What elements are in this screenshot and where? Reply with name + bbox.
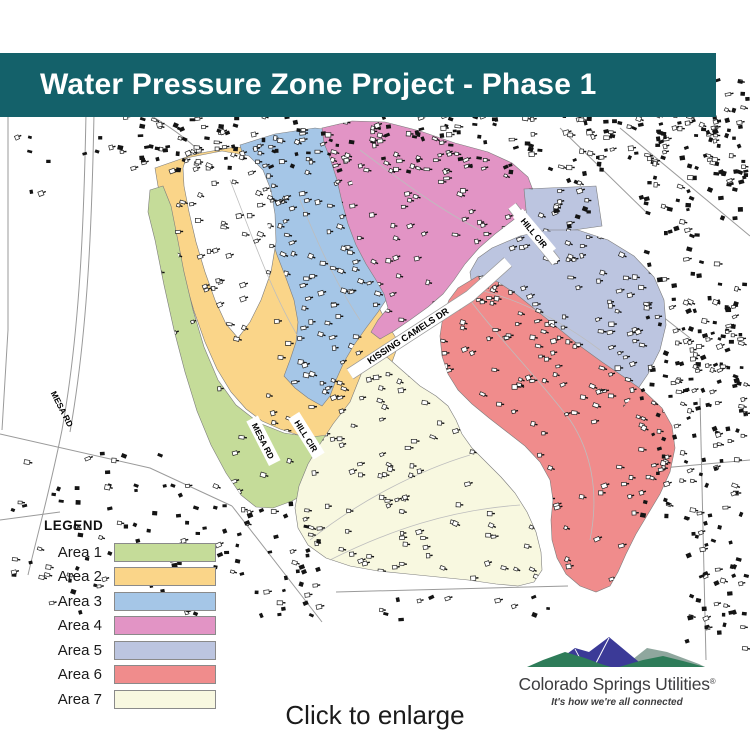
mountains-icon (527, 633, 707, 673)
legend-swatch-area-1 (114, 543, 216, 562)
legend-label: Area 6 (30, 666, 102, 683)
legend-swatch-area-4 (114, 616, 216, 635)
legend-item-area-2: Area 2 (30, 565, 245, 590)
legend-swatch-area-2 (114, 567, 216, 586)
registered-mark: ® (710, 677, 716, 686)
legend-label: Area 4 (30, 617, 102, 634)
click-to-enlarge-caption: Click to enlarge (0, 700, 750, 731)
legend-label: Area 1 (30, 544, 102, 561)
legend-swatch-area-6 (114, 665, 216, 684)
svg-text:MESA RD: MESA RD (49, 389, 76, 428)
legend-item-area-5: Area 5 (30, 638, 245, 663)
legend-swatch-area-3 (114, 592, 216, 611)
legend-label: Area 3 (30, 593, 102, 610)
csu-logo: Colorado Springs Utilities® It's how we'… (503, 633, 731, 708)
street-label-mesa-rd-west: MESA RD (49, 389, 76, 428)
legend: LEGEND Area 1 Area 2 Area 3 Area 4 Area … (30, 518, 245, 712)
legend-item-area-1: Area 1 (30, 540, 245, 565)
legend-item-area-3: Area 3 (30, 589, 245, 614)
logo-company-name: Colorado Springs Utilities® (503, 674, 731, 695)
legend-item-area-6: Area 6 (30, 663, 245, 688)
legend-title: LEGEND (44, 518, 245, 533)
title-banner: Water Pressure Zone Project - Phase 1 (0, 53, 716, 117)
legend-swatch-area-5 (114, 641, 216, 660)
page-title: Water Pressure Zone Project - Phase 1 (40, 68, 597, 102)
legend-label: Area 5 (30, 642, 102, 659)
legend-label: Area 2 (30, 568, 102, 585)
legend-item-area-4: Area 4 (30, 614, 245, 639)
